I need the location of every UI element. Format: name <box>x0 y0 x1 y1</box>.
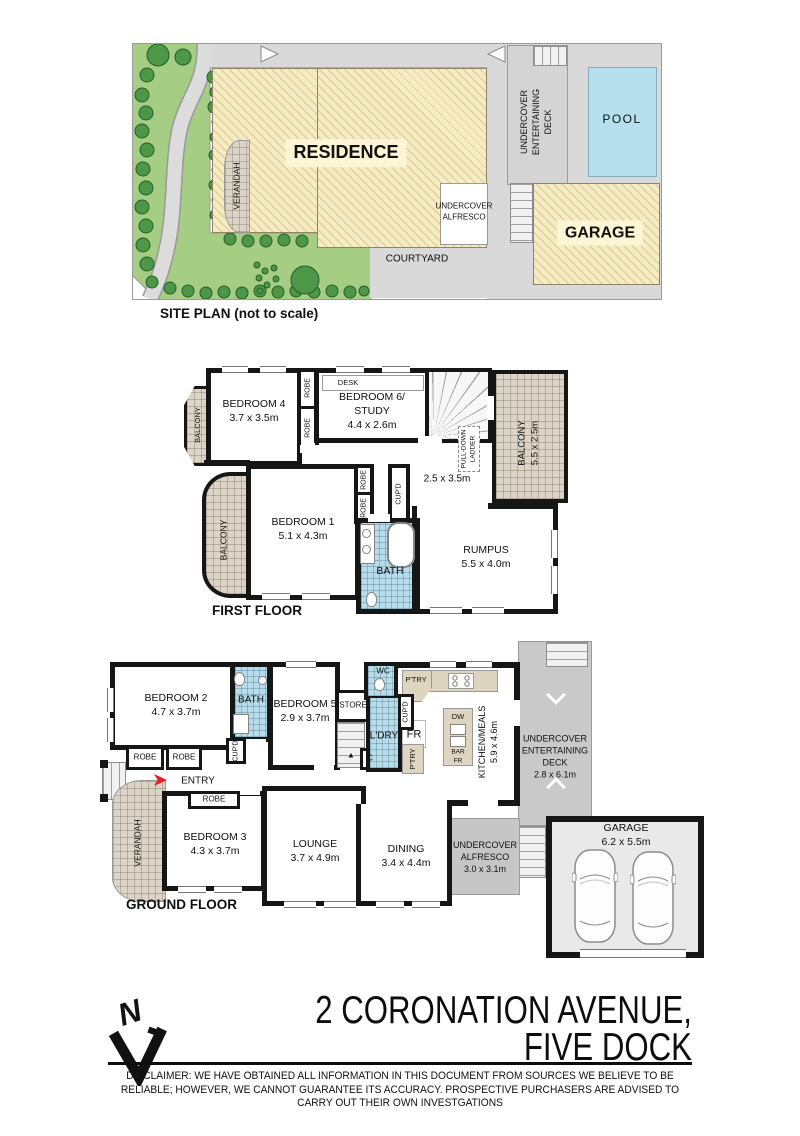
gf-stairs-arrow: ▲ <box>347 751 355 762</box>
gf-bath-label: BATH <box>238 693 264 706</box>
gf-garage-label: GARAGE 6.2 x 5.5m <box>601 822 650 850</box>
gf-deck-stairs <box>546 642 588 667</box>
site-plan-section: RESIDENCE VERANDAH UNDERCOVER ENTERTAINI… <box>0 0 800 330</box>
site-alfresco-stairs <box>510 183 533 243</box>
gf-fr-label: FR <box>407 728 422 743</box>
gf-wc-label: WC <box>376 667 389 678</box>
gf-dw-label: DW <box>452 712 465 722</box>
sink-icon <box>450 736 466 747</box>
ff-bedroom1-label: BEDROOM 1 5.1 x 4.3m <box>271 516 334 544</box>
basin-icon <box>362 529 371 538</box>
footer-divider <box>108 1062 692 1065</box>
garage-door <box>580 949 686 958</box>
gf-barfr-label: BAR FR <box>451 748 464 765</box>
site-deck-label: UNDERCOVER ENTERTAINING DECK <box>519 89 555 155</box>
ground-floor-section: BEDROOM 2 4.7 x 3.7m BATH CUP'D BEDROOM … <box>0 640 800 970</box>
toilet-icon <box>374 678 385 691</box>
first-floor-title: FIRST FLOOR <box>212 602 302 620</box>
sink-icon <box>450 724 466 735</box>
ff-rumpus-label: RUMPUS 5.5 x 4.0m <box>461 544 510 572</box>
toilet-icon <box>366 592 377 607</box>
ff-robe-label: ROBE <box>303 378 312 398</box>
ff-landing-dims: 2.5 x 3.5m <box>424 472 471 485</box>
toilet-icon <box>234 672 245 686</box>
gf-alfresco-stairs <box>518 826 546 878</box>
site-garage-label: GARAGE <box>557 220 643 245</box>
ff-hall-cupd-label: CUP'D <box>394 483 403 504</box>
disclaimer-text: DISCLAIMER: WE HAVE OBTAINED ALL INFORMA… <box>111 1070 690 1111</box>
site-residence-label: RESIDENCE <box>285 139 406 167</box>
site-courtyard-label: COURTYARD <box>386 252 448 265</box>
gf-store-label: STORE <box>339 701 366 712</box>
ff-bath-label: BATH <box>376 565 403 579</box>
ff-wall <box>204 460 250 466</box>
ff-hall-robe-label: ROBE <box>359 470 368 490</box>
ff-ladder-label: PULL-DOWN LADDER <box>460 429 477 468</box>
gf-robe-bed3-label: ROBE <box>203 795 226 806</box>
first-floor-section: BALCONY BEDROOM 4 3.7 x 3.5m ROBE ROBE D… <box>0 350 800 640</box>
gf-kitchen-label: KITCHEN/MEALS 5.9 x 4.6m <box>477 706 501 779</box>
gf-ldry-label: L'DRY <box>370 729 398 742</box>
floorplan-sheet: RESIDENCE VERANDAH UNDERCOVER ENTERTAINI… <box>0 0 800 1136</box>
gf-ptry-top-label: P'TRY <box>405 675 426 685</box>
ff-bedroom4-label: BEDROOM 4 3.7 x 3.5m <box>222 398 285 426</box>
ground-floor-title: GROUND FLOOR <box>126 896 237 914</box>
gate-icon <box>260 45 280 63</box>
ff-balcony-top-label: BALCONY <box>193 407 203 443</box>
gf-ptry-bottom-label: P'TRY <box>408 748 418 769</box>
ff-balcony-left-label: BALCONY <box>218 520 229 561</box>
ff-wall <box>488 503 558 509</box>
gf-verandah-label: VERANDAH <box>132 819 143 866</box>
car-icon <box>630 848 676 948</box>
bathtub-icon <box>387 522 415 568</box>
shower <box>233 714 249 734</box>
gf-dining-label: DINING 3.4 x 4.4m <box>381 843 430 871</box>
gf-bedroom5-label: BEDROOM 5 2.9 x 3.7m <box>273 698 336 726</box>
site-plan-title: SITE PLAN (not to scale) <box>160 305 318 323</box>
pool-label: POOL <box>602 112 641 128</box>
site-verandah-label: VERANDAH <box>231 162 242 209</box>
ff-balcony-right-label: BALCONY 5.5 x 2.5m <box>516 420 541 465</box>
north-letter: N <box>114 994 148 1033</box>
car-icon <box>572 846 618 946</box>
ff-hall-robe-label: ROBE <box>359 498 368 518</box>
gf-lounge-label: LOUNGE 3.7 x 4.9m <box>290 838 339 866</box>
gate-icon <box>486 45 506 63</box>
gf-deck-label: UNDERCOVER ENTERTAINING DECK 2.8 x 6.1m <box>522 733 588 781</box>
site-alfresco-label: UNDERCOVER ALFRESCO <box>436 201 493 222</box>
gf-cupd2-label: CUP'D <box>401 701 410 722</box>
gf-bedroom3-label: BEDROOM 3 4.3 x 3.7m <box>183 831 246 859</box>
gf-bedroom2-label: BEDROOM 2 4.7 x 3.7m <box>144 692 207 720</box>
gf-alfresco-label: UNDERCOVER ALFRESCO 3.0 x 3.1m <box>453 840 517 876</box>
ff-robe-label: ROBE <box>303 418 312 438</box>
property-address: 2 CORONATION AVENUE, FIVE DOCK <box>315 992 692 1066</box>
ff-bedroom6-label: BEDROOM 6/ STUDY 4.4 x 2.6m <box>339 391 405 433</box>
basin-icon <box>258 676 267 685</box>
ff-desk-label: DESK <box>338 378 358 388</box>
gf-cupd-label: CUP'D <box>231 740 240 761</box>
gf-robe-label: ROBE <box>173 753 196 764</box>
gf-robe-label: ROBE <box>134 753 157 764</box>
gf-entry-label: ENTRY <box>181 774 215 787</box>
basin-icon <box>362 545 371 554</box>
site-driveway-strip <box>210 43 487 68</box>
site-deck-stairs <box>533 46 567 66</box>
cooktop-icon <box>448 673 474 689</box>
gf-c-label: C <box>367 754 373 765</box>
